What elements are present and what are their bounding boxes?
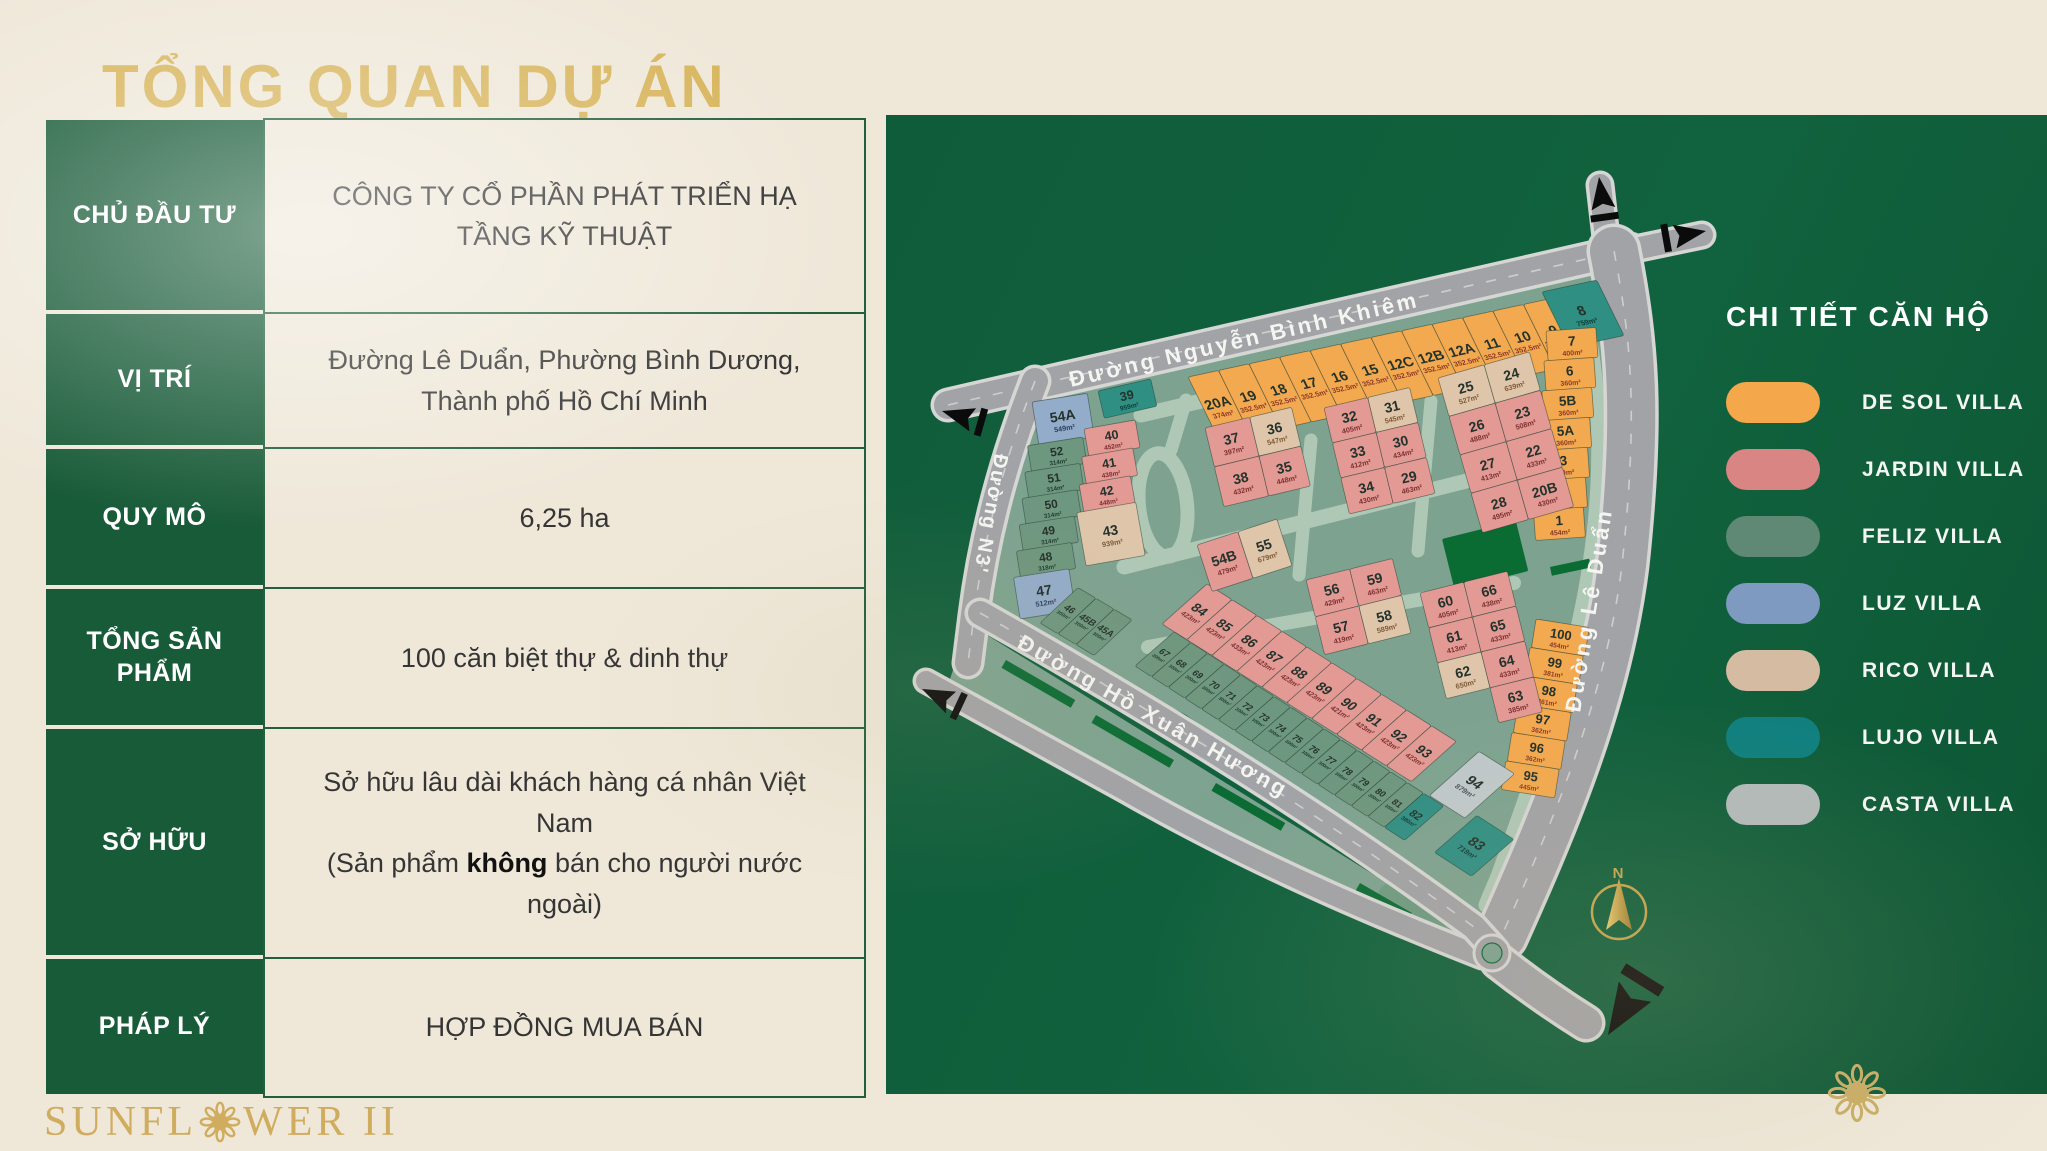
svg-text:7: 7	[1567, 333, 1576, 348]
legend-label-rico: RICO VILLA	[1862, 659, 1996, 683]
legend-label-lujo: LUJO VILLA	[1862, 726, 2000, 750]
svg-text:99: 99	[1547, 654, 1564, 671]
sunflower-logo: SUNFL WER II	[44, 1098, 399, 1146]
legend-label-jardin: JARDIN VILLA	[1862, 458, 2025, 482]
row-value-vi-tri: Đường Lê Duẩn, Phường Bình Dương, Thành …	[263, 312, 866, 449]
svg-text:98: 98	[1540, 683, 1557, 700]
svg-text:400m²: 400m²	[1562, 350, 1583, 358]
svg-text:48: 48	[1038, 549, 1054, 565]
page-title: TỔNG QUAN DỰ ÁN	[102, 52, 727, 121]
legend-row-rico: RICO VILLA	[1726, 637, 2046, 704]
svg-text:42: 42	[1099, 483, 1115, 499]
svg-text:95: 95	[1522, 768, 1539, 785]
map-lot-43: 43939m²	[1077, 502, 1145, 566]
map-lot-7: 7400m²	[1546, 328, 1598, 361]
row-header-quy-mo: QUY MÔ	[46, 449, 263, 585]
svg-text:40: 40	[1103, 427, 1119, 443]
svg-text:50: 50	[1044, 496, 1060, 512]
svg-text:5B: 5B	[1558, 393, 1577, 409]
svg-text:41: 41	[1101, 455, 1117, 471]
svg-text:96: 96	[1528, 739, 1545, 756]
villa-legend: CHI TIẾT CĂN HỘ DE SOL VILLAJARDIN VILLA…	[1726, 301, 2046, 838]
corner-flower-icon	[1824, 1060, 1890, 1131]
slide-root: { "title": "TỔNG QUAN DỰ ÁN", "table": {…	[0, 0, 2047, 1151]
row-value-tong-san-pham: 100 căn biệt thự & dinh thự	[263, 587, 866, 729]
project-info-table: CHỦ ĐẦU TƯ CÔNG TY CỔ PHẦN PHÁT TRIỂN HẠ…	[46, 118, 866, 1096]
map-lot-6: 6360m²	[1544, 357, 1596, 390]
row-value-so-huu: Sở hữu lâu dài khách hàng cá nhân Việt N…	[263, 727, 866, 959]
legend-label-luz: LUZ VILLA	[1862, 592, 1983, 616]
svg-text:49: 49	[1041, 523, 1057, 539]
legend-swatch-casta	[1726, 784, 1820, 825]
legend-title: CHI TIẾT CĂN HỘ	[1726, 301, 2046, 333]
row-header-phap-ly: PHÁP LÝ	[46, 959, 263, 1094]
map-lot-5B: 5B360m²	[1542, 387, 1594, 420]
north-compass: N	[1592, 865, 1646, 939]
legend-swatch-luz	[1726, 583, 1820, 624]
legend-label-feliz: FELIZ VILLA	[1862, 525, 2003, 549]
legend-row-casta: CASTA VILLA	[1726, 771, 2046, 838]
legend-swatch-rico	[1726, 650, 1820, 691]
legend-row-luz: LUZ VILLA	[1726, 570, 2046, 637]
legend-rows: DE SOL VILLAJARDIN VILLAFELIZ VILLALUZ V…	[1726, 369, 2046, 838]
row-value-chu-dau-tu: CÔNG TY CỔ PHẦN PHÁT TRIỂN HẠ TẦNG KỸ TH…	[263, 118, 866, 314]
svg-text:360m²: 360m²	[1558, 409, 1579, 417]
row-header-tong-san-pham: TỔNG SẢN PHẨM	[46, 589, 263, 725]
svg-text:360m²: 360m²	[1556, 439, 1577, 447]
svg-text:5A: 5A	[1556, 423, 1575, 439]
legend-row-jardin: JARDIN VILLA	[1726, 436, 2046, 503]
legend-swatch-lujo	[1726, 717, 1820, 758]
legend-row-desol: DE SOL VILLA	[1726, 369, 2046, 436]
so-huu-line2: (Sản phẩm không bán cho người nước ngoài…	[293, 843, 836, 924]
row-header-vi-tri: VỊ TRÍ	[46, 314, 263, 445]
svg-text:N: N	[1613, 865, 1624, 882]
svg-text:52: 52	[1049, 444, 1065, 460]
legend-swatch-jardin	[1726, 449, 1820, 490]
masterplan-panel: 20A374m²19352.5m²18352.5m²17352.5m²16352…	[886, 115, 2047, 1094]
logo-text-post: WER II	[243, 1098, 399, 1146]
row-value-quy-mo: 6,25 ha	[263, 447, 866, 589]
legend-label-casta: CASTA VILLA	[1862, 793, 2015, 817]
row-header-so-huu: SỞ HỮU	[46, 729, 263, 955]
legend-swatch-feliz	[1726, 516, 1820, 557]
so-huu-line1: Sở hữu lâu dài khách hàng cá nhân Việt N…	[293, 762, 836, 843]
svg-text:360m²: 360m²	[1560, 379, 1581, 387]
map-lot-54A: 54A549m²	[1032, 393, 1094, 445]
svg-text:454m²: 454m²	[1550, 529, 1571, 537]
legend-label-desol: DE SOL VILLA	[1862, 391, 2024, 415]
legend-swatch-desol	[1726, 382, 1820, 423]
row-header-chu-dau-tu: CHỦ ĐẦU TƯ	[46, 120, 263, 310]
svg-text:51: 51	[1046, 470, 1062, 486]
legend-row-lujo: LUJO VILLA	[1726, 704, 2046, 771]
legend-row-feliz: FELIZ VILLA	[1726, 503, 2046, 570]
row-value-phap-ly: HỢP ĐỒNG MUA BÁN	[263, 957, 866, 1098]
logo-flower-icon	[199, 1101, 241, 1143]
logo-text-pre: SUNFL	[44, 1098, 197, 1146]
